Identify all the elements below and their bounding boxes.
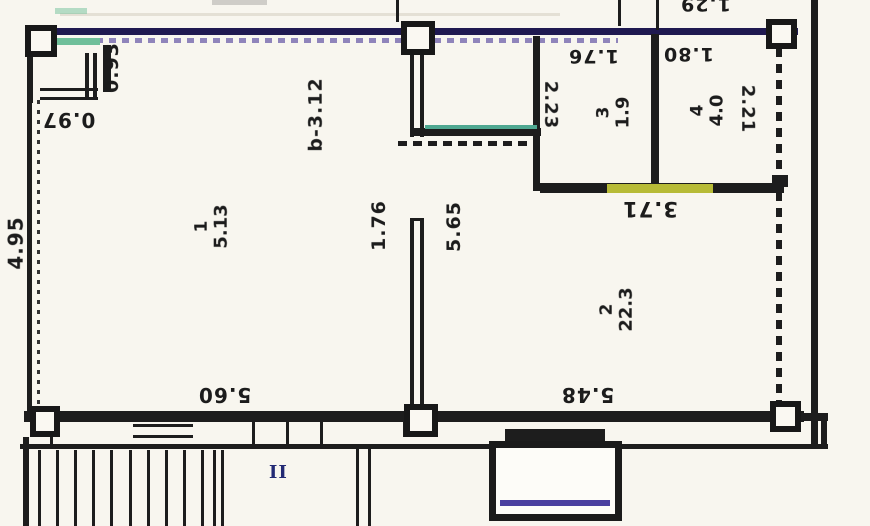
scan-artifact-line bbox=[60, 13, 560, 16]
junction-square-top-right bbox=[766, 19, 797, 49]
yellow-highlighted-wall-segment bbox=[607, 184, 713, 193]
room-2-area: 22.3 bbox=[618, 287, 636, 331]
junction-square-bottom-center bbox=[404, 404, 438, 437]
stair-tread bbox=[56, 450, 59, 526]
floor-plan-scan: 0.97 0.93 4.95 b-3.12 2.23 1.76 1.80 1.2… bbox=[0, 0, 870, 526]
vestibule-wall-horizontal bbox=[40, 88, 98, 100]
room-4-area: 4.0 bbox=[708, 95, 726, 127]
stair-tread bbox=[38, 450, 41, 526]
stair-tread bbox=[129, 450, 132, 526]
facade-window bbox=[133, 424, 193, 438]
closet-dashed-line bbox=[398, 141, 538, 146]
dim-2.21: 2.21 bbox=[738, 85, 756, 133]
junction-square-top-left bbox=[25, 25, 57, 57]
stair-tread bbox=[201, 450, 204, 526]
tick-above-top-center-square bbox=[396, 0, 399, 22]
room-4-label: 4 4.0 bbox=[689, 95, 726, 127]
rooms34-divider-wall bbox=[651, 34, 659, 190]
facade-divider bbox=[286, 420, 289, 447]
stair-end-wall bbox=[213, 450, 224, 526]
scan-artifact-smudge2 bbox=[212, 0, 267, 5]
junction-square-bottom-left bbox=[30, 406, 60, 437]
left-wall-dotted-line bbox=[37, 100, 40, 410]
room-4-number: 4 bbox=[689, 105, 706, 117]
top-wall-green-tint bbox=[57, 38, 100, 45]
dim-2.23: 2.23 bbox=[541, 81, 559, 129]
closet-left-wall bbox=[410, 53, 424, 137]
dim-1.76-top: 1.76 bbox=[568, 46, 619, 65]
stair-tread bbox=[110, 450, 113, 526]
tick-above-129 bbox=[618, 0, 621, 26]
stairwell-label: II bbox=[268, 461, 287, 479]
facade-lower-line bbox=[20, 444, 828, 449]
closet-bottom-wall bbox=[411, 128, 541, 136]
room-1-label: 1 5.13 bbox=[194, 204, 231, 248]
dim-1.80: 1.80 bbox=[663, 44, 714, 63]
junction-square-top-center bbox=[401, 21, 435, 55]
dim-1.76-mid: 1.76 bbox=[370, 200, 389, 251]
facade-divider bbox=[320, 422, 323, 447]
dim-4.95: 4.95 bbox=[6, 216, 26, 269]
facade-divider bbox=[252, 422, 255, 447]
stair-tread bbox=[147, 450, 150, 526]
tick-above-divider bbox=[656, 0, 659, 30]
stair-tread bbox=[92, 450, 95, 526]
wall-junction-blob bbox=[772, 175, 788, 187]
stoop-purple-line bbox=[500, 500, 610, 506]
right-interior-dashed-wall bbox=[776, 48, 782, 403]
dim-5.65: 5.65 bbox=[445, 201, 464, 252]
room-2-label: 2 22.3 bbox=[599, 287, 636, 331]
dim-5.48: 5.48 bbox=[561, 385, 614, 405]
stair-left-wall bbox=[23, 437, 29, 526]
left-wall bbox=[27, 98, 32, 415]
room-3-area: 1.9 bbox=[614, 97, 632, 129]
dim-5.60: 5.60 bbox=[198, 385, 251, 405]
dim-0.97: 0.97 bbox=[42, 110, 95, 130]
room-1-number: 1 bbox=[194, 221, 211, 233]
scan-artifact-smudge bbox=[55, 8, 87, 14]
closet-right-wall bbox=[533, 36, 540, 191]
room-3-label: 3 1.9 bbox=[595, 97, 632, 129]
room-3-number: 3 bbox=[595, 107, 612, 119]
dim-1.29: 1.29 bbox=[680, 0, 731, 13]
room-1-area: 5.13 bbox=[213, 204, 231, 248]
dim-0.93: 0.93 bbox=[103, 42, 122, 93]
porch-wall bbox=[356, 447, 371, 526]
stair-tread bbox=[183, 450, 186, 526]
room-2-number: 2 bbox=[599, 304, 616, 316]
left-wall-upper bbox=[27, 53, 33, 103]
stoop bbox=[489, 441, 622, 521]
right-outer-wall bbox=[811, 0, 818, 447]
dim-b-3.12: b-3.12 bbox=[307, 77, 326, 151]
stair-tread bbox=[74, 450, 77, 526]
dim-3.71: 3.71 bbox=[622, 198, 678, 219]
central-partition-wall bbox=[410, 218, 424, 410]
junction-square-bottom-right bbox=[770, 401, 801, 432]
closet-bottom-teal-line bbox=[425, 125, 537, 129]
stair-tread bbox=[165, 450, 168, 526]
